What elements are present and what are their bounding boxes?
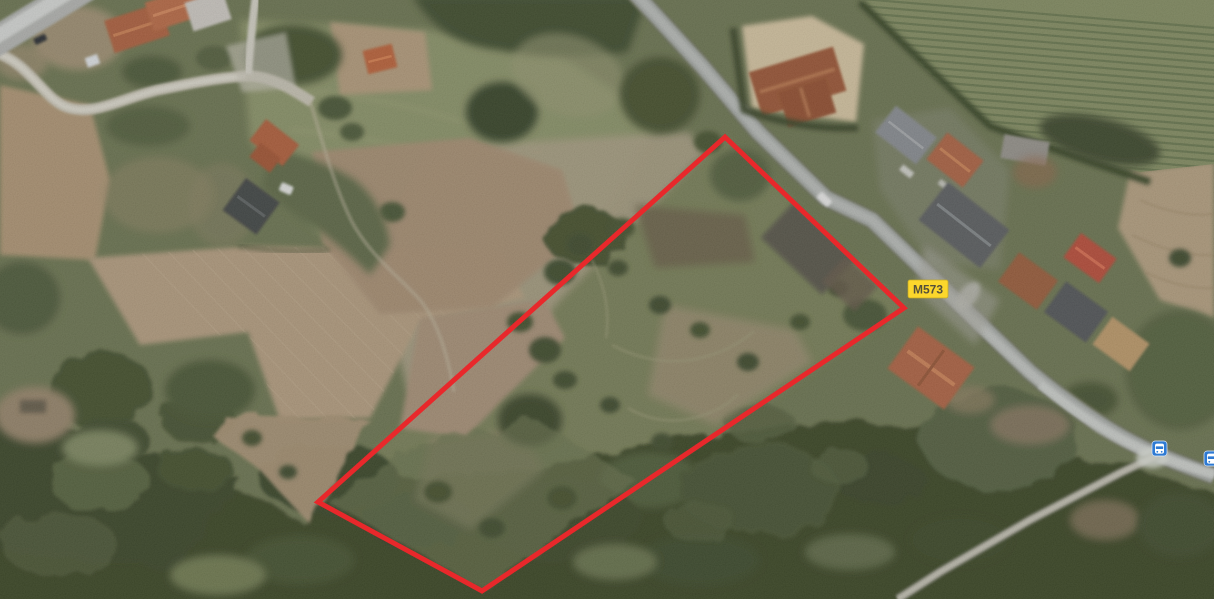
svg-text:M573: M573 [913,283,943,297]
